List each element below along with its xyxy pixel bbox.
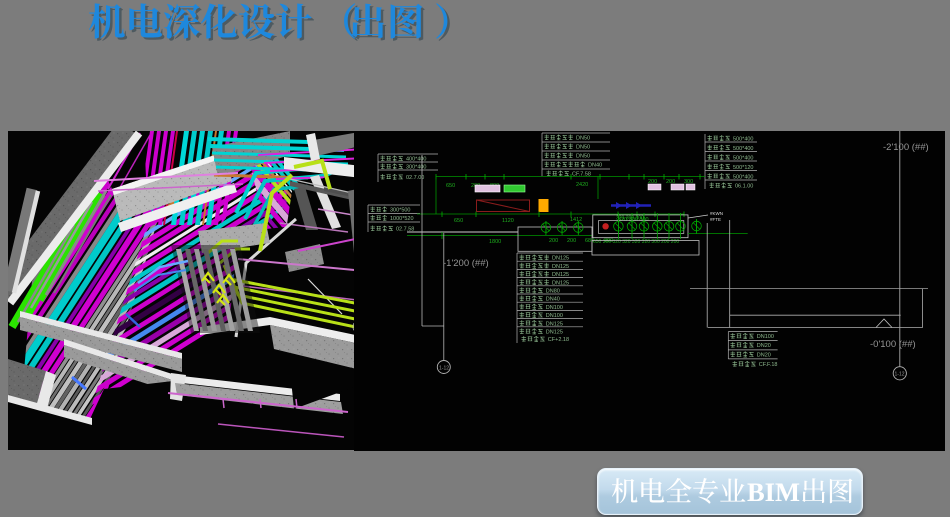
svg-text:1-12: 1-12: [895, 372, 905, 378]
svg-text:DN40: DN40: [588, 163, 602, 169]
svg-text:1-12: 1-12: [439, 366, 449, 372]
svg-text:500*400: 500*400: [733, 155, 754, 161]
svg-text:DN125: DN125: [552, 280, 569, 286]
svg-text:DN40: DN40: [546, 297, 560, 303]
svg-text:DN20: DN20: [757, 343, 771, 349]
svg-text:DN80: DN80: [546, 289, 560, 295]
svg-text:-2'100 (##): -2'100 (##): [883, 142, 929, 153]
svg-text:06.1.00: 06.1.00: [735, 184, 753, 190]
svg-text:500*120: 500*120: [733, 165, 754, 171]
svg-text:DN100: DN100: [546, 313, 563, 319]
svg-text:#KWN: #KWN: [710, 211, 723, 216]
svg-text:1000*520: 1000*520: [390, 216, 414, 222]
svg-text:650: 650: [446, 183, 455, 189]
svg-text:1800: 1800: [489, 239, 501, 245]
svg-text:300*400: 300*400: [406, 165, 427, 171]
svg-text:DN125: DN125: [552, 256, 569, 262]
svg-text:500*400: 500*400: [733, 136, 754, 142]
svg-text:#FTE: #FTE: [710, 217, 721, 222]
svg-text:DN50: DN50: [576, 145, 590, 151]
svg-text:DN20: DN20: [757, 353, 771, 359]
svg-text:400*400: 400*400: [406, 157, 427, 163]
svg-text:200: 200: [549, 238, 558, 244]
svg-text:DN125: DN125: [546, 330, 563, 336]
svg-text:500*400: 500*400: [733, 174, 754, 180]
svg-text:-1'200 (##): -1'200 (##): [443, 258, 489, 269]
svg-text:-0'100 (##): -0'100 (##): [870, 339, 916, 350]
svg-text:1412: 1412: [570, 217, 582, 223]
svg-text:DN125: DN125: [552, 264, 569, 270]
svg-text:500*400: 500*400: [733, 146, 754, 152]
svg-text:BIM: BIM: [747, 477, 800, 507]
svg-text:320 300 300: 320 300 300: [616, 216, 644, 222]
svg-text:DN125: DN125: [546, 321, 563, 327]
svg-text:650 300 320 320 320 320 300 20: 650 300 320 320 320 320 300 200 200: [593, 239, 679, 245]
svg-text:DN125: DN125: [552, 272, 569, 278]
svg-text:CF.F.18: CF.F.18: [759, 362, 778, 368]
svg-text:DN50: DN50: [576, 136, 590, 142]
svg-text:DN100: DN100: [546, 305, 563, 311]
svg-text:1120: 1120: [502, 218, 514, 224]
svg-text:650: 650: [454, 218, 463, 224]
svg-text:2420: 2420: [576, 182, 588, 188]
svg-text:DN100: DN100: [757, 334, 774, 340]
svg-text:DN50: DN50: [576, 154, 590, 160]
svg-text:300*500: 300*500: [390, 208, 411, 214]
svg-text:200: 200: [567, 238, 576, 244]
svg-text:CF+2.18: CF+2.18: [548, 337, 569, 343]
